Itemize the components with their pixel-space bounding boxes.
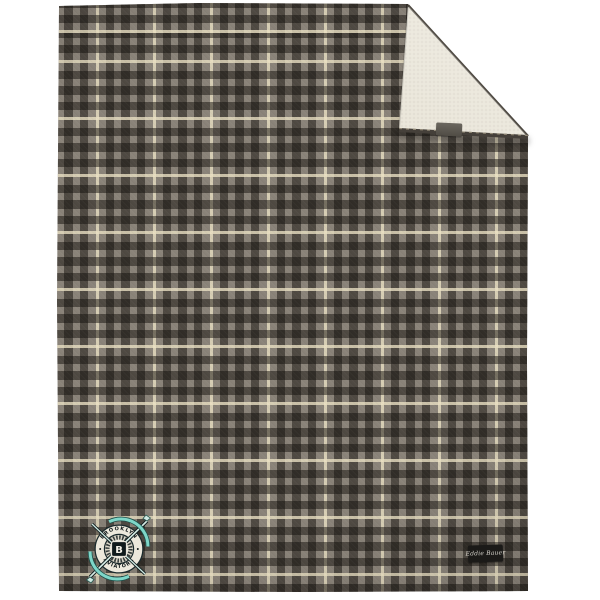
brooklyn-aviators-patch-logo: BROOKLYN AVIATORS B [84, 514, 154, 584]
stick-blade-ne [143, 515, 151, 521]
product-photo: BROOKLYN AVIATORS B Eddie Bauer [0, 0, 600, 600]
fold-crease-highlight [409, 7, 526, 135]
brand-tag-label: Eddie Bauer [465, 549, 505, 557]
stick-blade-sw [87, 577, 95, 583]
fold-fabric-tag [436, 122, 463, 136]
patch-left-dot [99, 548, 101, 550]
fold-binding-edge [399, 130, 528, 137]
fold-crease-edge [408, 5, 528, 136]
brand-tag: Eddie Bauer [468, 544, 504, 562]
fold-edge-details [0, 0, 600, 600]
patch-center-letter: B [115, 545, 123, 556]
fold-left-crease [399, 5, 408, 130]
patch-right-dot [137, 548, 139, 550]
